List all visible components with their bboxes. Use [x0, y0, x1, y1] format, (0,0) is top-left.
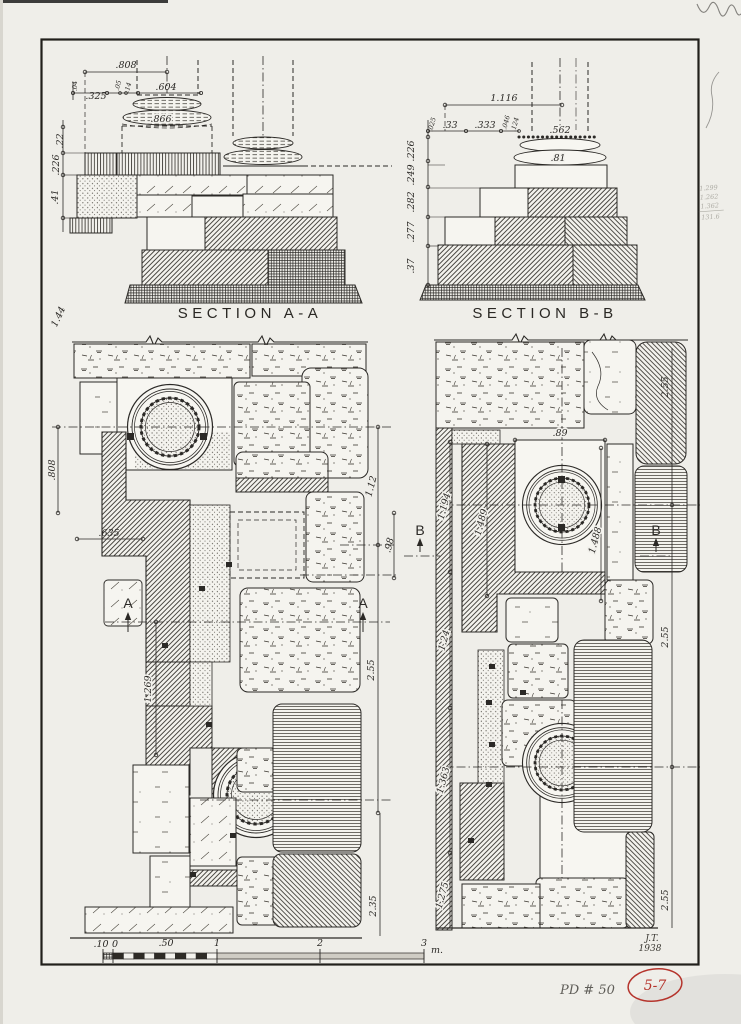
scale-unit: m. — [431, 945, 443, 956]
dim-label: 1.116 — [490, 93, 517, 104]
pd-number: PD # 50 — [559, 983, 615, 998]
dim-label: .249 — [406, 164, 417, 185]
dim-label: .604 — [155, 82, 176, 93]
dim-label: .04 — [71, 81, 79, 91]
scale-tick-label: 0 — [112, 939, 118, 950]
dim-label: .89 — [552, 428, 567, 439]
dim-label: .81 — [550, 153, 565, 164]
scale-tick-label: 2 — [316, 938, 323, 949]
drawing-sheet: .808 .325 .04 .05 .14 .604 .866 .22 .226… — [0, 0, 741, 1024]
signature-year: 1938 — [639, 944, 662, 954]
section-a-title: SECTION A-A — [178, 305, 323, 322]
section-b-title: SECTION B-B — [472, 305, 617, 322]
section-marker: B — [415, 522, 424, 538]
section-marker: B — [651, 522, 660, 538]
plate-ref: 5-7 — [644, 978, 667, 994]
dim-label: .05 — [113, 79, 123, 91]
pry-hole — [558, 476, 565, 483]
dim-label: 1.12 — [364, 475, 380, 498]
scale-bar: .10 0 .50 1 2 3 m. — [93, 938, 443, 963]
pencil-scribble-top-right — [697, 2, 741, 16]
dim-label: .22 — [55, 133, 66, 148]
dim-label: .635 — [98, 528, 119, 539]
archaeological-drawing: .808 .325 .04 .05 .14 .604 .866 .22 .226… — [0, 0, 741, 1024]
scale-tick-label: 3 — [421, 938, 427, 949]
dim-label: 2.35 — [368, 895, 379, 917]
margin-note: 1.299 — [699, 183, 718, 192]
dim-label: .41 — [50, 189, 61, 204]
scale-tick-label: .10 — [93, 939, 108, 950]
dim-label: 2.55 — [660, 626, 671, 648]
dim-label: .14 — [123, 81, 133, 93]
pencil-scribble-margin — [706, 72, 719, 128]
margin-note: 1.362 — [700, 201, 719, 210]
column-base-section-a-right — [223, 137, 392, 166]
hidden-stone-dashed — [238, 520, 296, 570]
foundation-courses-a — [70, 153, 362, 303]
section-b: 1.116 .025 .33 .333 .046 .124 .562 .81 .… — [406, 58, 645, 322]
dim-label: .37 — [406, 257, 417, 273]
section-marker: A — [123, 595, 133, 611]
hidden-stone-dashed — [230, 512, 304, 578]
dim-label: .226 — [406, 140, 417, 161]
plan-right: B B .89 1.194 1.24 1.363 1.275 1.489 1.4… — [404, 334, 700, 930]
margin-note-sum: 131.6 — [701, 212, 720, 221]
foundation-courses-b — [420, 165, 645, 300]
dim-label: .808 — [115, 60, 136, 71]
dim-label: .33 — [442, 120, 457, 131]
section-marker: A — [358, 595, 368, 611]
title-block: J.T. 1938 — [639, 934, 662, 954]
signature-initials: J.T. — [643, 934, 658, 944]
dim-label: 2.55 — [660, 889, 671, 911]
stones-lower — [85, 704, 361, 933]
plan-left: A A 1.44 .808 .635 1.269 1.12 .98 2.55 2… — [47, 305, 398, 938]
dim-label: .277 — [406, 220, 417, 242]
dim-label: .562 — [549, 125, 570, 136]
margin-note: 1.262 — [700, 192, 719, 201]
dim-label: 2.55 — [366, 659, 377, 681]
dim-label: .282 — [406, 191, 417, 212]
dim-label: .866 — [150, 114, 171, 125]
dim-label: 2.55 — [660, 376, 671, 398]
pry-hole — [558, 524, 565, 531]
dim-label: 1.269 — [143, 675, 154, 702]
dim-label: .808 — [47, 459, 58, 480]
dim-label: .025 — [426, 116, 437, 132]
dim-label: 1.44 — [49, 305, 68, 329]
section-a: .808 .325 .04 .05 .14 .604 .866 .22 .226… — [50, 56, 392, 322]
scale-tick-label: 1 — [214, 938, 220, 949]
dim-label: .226 — [51, 154, 62, 175]
scale-tick-label: .50 — [158, 938, 173, 949]
pry-hole — [127, 433, 134, 440]
dim-label: .325 — [85, 91, 106, 102]
dim-label: .98 — [382, 537, 397, 554]
dim-label: .333 — [474, 120, 495, 131]
pry-hole — [200, 433, 207, 440]
